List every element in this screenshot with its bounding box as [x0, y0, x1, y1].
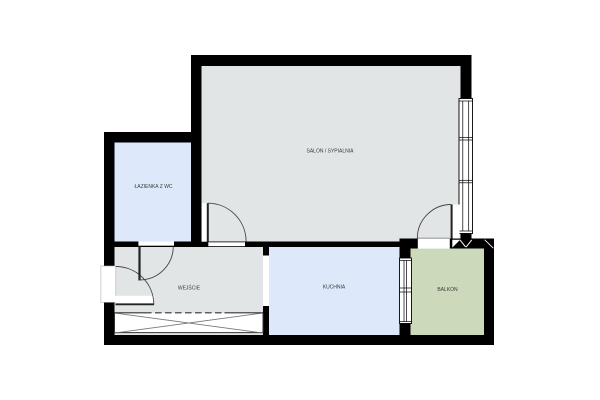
svg-text:BALKON: BALKON — [437, 287, 458, 293]
svg-text:WEJŚCIE: WEJŚCIE — [178, 283, 201, 291]
svg-text:KUCHNIA: KUCHNIA — [323, 285, 346, 291]
svg-text:SALON / SYPIALNIA: SALON / SYPIALNIA — [307, 149, 355, 155]
svg-text:ŁAZIENKA Z WC: ŁAZIENKA Z WC — [134, 184, 172, 190]
